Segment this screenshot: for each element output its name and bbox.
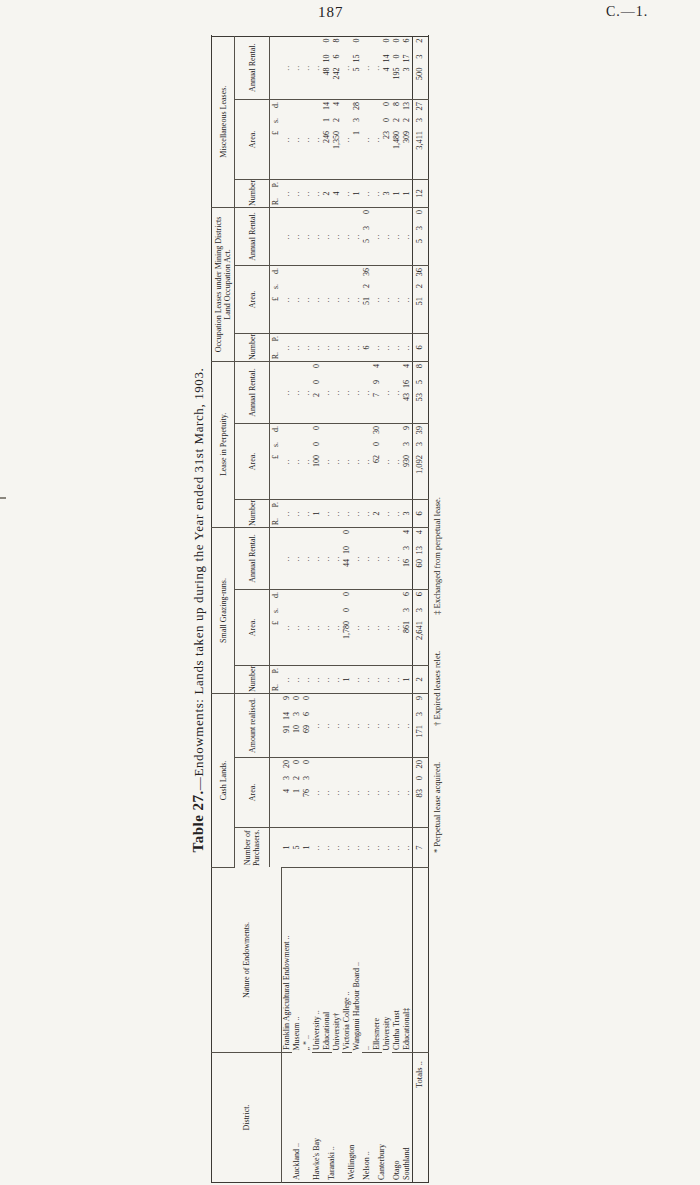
sub-header-2-0: Number. <box>235 499 270 527</box>
cell-value-part: 0 <box>415 776 425 789</box>
cell-value-part: 1,480 <box>392 131 401 177</box>
sub-header-3-1: Area. <box>235 265 270 333</box>
empty-cell-dots: .. <box>322 426 331 497</box>
cell-value: A.R.P. <box>271 182 280 205</box>
cell-value-part: £ <box>271 131 280 177</box>
data-cell: .. <box>292 361 302 423</box>
empty-cell-dots: .. <box>292 268 301 331</box>
cell-value-part: P. <box>271 336 280 352</box>
empty-cell-dots: .. <box>352 268 361 331</box>
data-cell: .. <box>322 361 332 423</box>
data-cell: .. <box>392 693 402 757</box>
data-cell: 2 <box>372 499 382 527</box>
data-cell: .. <box>312 828 322 868</box>
cell-value: 246114 <box>322 102 331 177</box>
cell-value-part: 0 <box>292 696 301 712</box>
cell-value: 60134 <box>415 530 425 587</box>
sub-header-0-1: Area. <box>235 758 270 828</box>
data-cell: .. <box>362 36 372 99</box>
cell-value: 1030 <box>292 696 301 755</box>
footnote-perpetual: * Perpetual lease acquired. <box>432 762 442 853</box>
units-cell: A.R.P. <box>270 333 282 361</box>
empty-cell-dots: .. <box>282 364 291 421</box>
units-cell <box>270 527 282 589</box>
data-cell: .. <box>332 693 342 757</box>
table-title-number: Table 27. <box>190 790 206 852</box>
cell-value: 530 <box>415 210 425 263</box>
cell-value-part: 2 <box>402 118 411 131</box>
empty-cell-dots: .. <box>302 668 311 691</box>
empty-cell-dots: .. <box>332 502 341 525</box>
empty-cell-dots: .. <box>342 336 351 359</box>
cell-value-part: 69 <box>302 725 311 755</box>
data-cell: 3 <box>402 499 413 527</box>
empty-cell-dots: .. <box>322 268 331 331</box>
nature-cell: „ * .. <box>302 868 312 1053</box>
empty-cell-dots: .. <box>392 760 401 825</box>
column-header-district: District. <box>212 1053 282 1183</box>
cell-value-part: 8 <box>415 364 425 380</box>
data-cell: .. <box>362 423 372 499</box>
data-cell: 1 <box>392 179 402 207</box>
empty-cell-dots: .. <box>312 530 321 587</box>
data-cell: .. <box>312 333 322 361</box>
cell-value: 4320 <box>282 760 291 825</box>
cell-value-part: 23 <box>382 131 391 177</box>
group-header-3: Occupation Leases under Mining Districts… <box>212 207 235 361</box>
empty-cell-dots: .. <box>362 182 371 205</box>
empty-cell-dots: .. <box>382 530 391 587</box>
data-cell: 5 <box>292 828 302 868</box>
column-header-nature: Nature of Endowments. <box>212 868 282 1053</box>
data-cell: .. <box>332 207 342 265</box>
data-cell: .. <box>322 589 332 665</box>
cell-value-part: 6 <box>402 38 411 54</box>
cell-value-part: s. <box>271 118 280 131</box>
empty-cell-dots: .. <box>342 830 351 865</box>
data-cell: .. <box>292 527 302 589</box>
data-cell: .. <box>352 665 362 693</box>
cell-value-part: 0 <box>392 38 401 54</box>
data-cell: .. <box>372 265 382 333</box>
cell-value: 1,35024 <box>332 102 341 177</box>
data-cell: .. <box>281 179 292 207</box>
empty-cell-dots: .. <box>372 668 381 691</box>
nature-cell: .. <box>362 868 372 1053</box>
cell-value-part: P. <box>271 502 280 518</box>
cell-value-part: 500 <box>415 67 425 97</box>
data-cell: .. <box>362 499 372 527</box>
data-cell: .. <box>392 207 402 265</box>
cell-value: 1 <box>402 191 411 195</box>
totals-cell: 3,411327 <box>412 99 428 179</box>
empty-cell-dots: .. <box>382 426 391 497</box>
empty-cell-dots: .. <box>332 830 341 865</box>
district-cell: Auckland .. <box>281 1053 312 1183</box>
nature-cell: Wanganui Harbour Board .. <box>352 868 362 1053</box>
cell-value-part: 8 <box>332 38 341 54</box>
empty-cell-dots: .. <box>362 502 371 525</box>
data-cell: .. <box>302 589 312 665</box>
data-cell: .. <box>342 99 352 179</box>
cell-value: 62030 <box>372 426 381 497</box>
sub-header-0-0: Number of Purchasers. <box>235 828 270 868</box>
data-cell: .. <box>342 36 352 99</box>
cell-value: 83020 <box>415 760 425 825</box>
data-cell: .. <box>281 333 292 361</box>
empty-cell-dots: .. <box>302 102 311 177</box>
empty-cell-dots: .. <box>382 592 391 663</box>
data-cell: 1,35024 <box>332 99 342 179</box>
empty-cell-dots: .. <box>372 696 381 755</box>
empty-cell-dots: .. <box>292 668 301 691</box>
data-cell: .. <box>382 333 392 361</box>
data-cell: .. <box>281 423 292 499</box>
rotated-table-block: Table 27.—Endowments: Lands taken up dur… <box>190 37 482 1183</box>
cell-value-part: 8 <box>392 102 401 118</box>
cell-value-part: 1,780 <box>342 621 351 663</box>
data-cell: .. <box>332 361 342 423</box>
data-cell: 6 <box>362 333 372 361</box>
empty-cell-dots: .. <box>342 426 351 497</box>
cell-value-part: £ <box>271 455 280 497</box>
data-cell: .. <box>292 589 302 665</box>
cell-value-part: 2 <box>415 284 425 297</box>
empty-cell-dots: .. <box>402 336 411 359</box>
empty-cell-dots: .. <box>342 364 351 421</box>
cell-value-part: 9 <box>372 380 381 393</box>
units-cell <box>270 207 282 265</box>
data-cell: .. <box>392 589 402 665</box>
cell-value: 5150 <box>352 38 361 97</box>
table-row: WellingtonVictoria College ........11,78… <box>342 36 352 1182</box>
cell-value-part: 48 <box>322 67 331 97</box>
data-cell: .. <box>332 665 342 693</box>
data-cell: .. <box>392 423 402 499</box>
cell-value-part: 1 <box>352 131 361 177</box>
empty-cell-dots: .. <box>302 364 311 421</box>
empty-cell-dots: .. <box>352 426 361 497</box>
data-cell: .. <box>332 499 342 527</box>
data-cell: .. <box>352 693 362 757</box>
table-row: Hawke's BayUniversity ..............1100… <box>312 36 322 1182</box>
cell-value-part: 30 <box>372 426 381 442</box>
cell-value-part: 0 <box>292 760 301 776</box>
cell-value-part: s. <box>271 608 280 621</box>
data-cell: .. <box>312 265 322 333</box>
cell-value: 2 <box>322 191 331 195</box>
data-cell: .. <box>372 207 382 265</box>
table-row: Auckland ..Franklin Agricultural Endowme… <box>281 36 292 1182</box>
empty-cell-dots: .. <box>342 502 351 525</box>
totals-cell: 5358 <box>412 361 428 423</box>
empty-cell-dots: .. <box>282 210 291 263</box>
cell-value-part: 15 <box>352 54 361 67</box>
footnote-expired: † Expired leases relet. <box>432 651 442 726</box>
empty-cell-dots: .. <box>402 696 411 755</box>
units-cell: £s.d. <box>270 265 282 333</box>
cell-value-part: 0 <box>362 210 371 226</box>
empty-cell-dots: .. <box>282 426 291 497</box>
cell-value-part: R. <box>271 684 280 694</box>
empty-cell-dots: .. <box>402 760 411 825</box>
empty-cell-dots: .. <box>372 268 381 331</box>
data-cell: 86136 <box>402 589 413 665</box>
data-cell: .. <box>352 207 362 265</box>
cell-value-part: 0 <box>382 118 391 131</box>
data-cell: .. <box>392 499 402 527</box>
data-cell: .. <box>382 828 392 868</box>
group-header-4: Miscellaneous Leases. <box>212 36 235 207</box>
data-cell: .. <box>322 499 332 527</box>
cell-value-part: 43 <box>402 393 411 421</box>
empty-cell-dots: .. <box>282 268 291 331</box>
data-cell: 93039 <box>402 423 413 499</box>
cell-value-part: 0 <box>382 102 391 118</box>
data-cell: .. <box>281 207 292 265</box>
nature-cell: University† <box>332 868 342 1053</box>
data-cell: 200 <box>312 361 322 423</box>
data-cell: .. <box>322 665 332 693</box>
sub-header-3-0: Number. <box>235 333 270 361</box>
empty-cell-dots: .. <box>392 592 401 663</box>
units-blank-nature <box>270 758 282 828</box>
data-cell: .. <box>352 333 362 361</box>
group-header-0: Cash Lands. <box>212 693 235 867</box>
totals-cell: 2,64136 <box>412 589 428 665</box>
empty-cell-dots: .. <box>372 760 381 825</box>
empty-cell-dots: .. <box>302 592 311 663</box>
district-cell: Otago <box>392 1053 402 1183</box>
cell-value-part: 0 <box>372 442 381 455</box>
page-header: 187 C.—1. <box>0 2 700 26</box>
cell-value: 120 <box>292 760 301 825</box>
cell-value: 3 <box>402 511 411 515</box>
empty-cell-dots: .. <box>362 760 371 825</box>
data-cell: 1030 <box>292 693 302 757</box>
cell-value-part: 1 <box>292 789 301 825</box>
cell-value-part: 27 <box>415 102 425 118</box>
cell-value-part: 930 <box>402 455 411 497</box>
data-cell: 5150 <box>352 36 362 99</box>
empty-cell-dots: .. <box>352 760 361 825</box>
cell-value-part: 2 <box>332 118 341 131</box>
data-cell: .. <box>342 265 352 333</box>
empty-cell-dots: .. <box>332 364 341 421</box>
cell-value-part: 3 <box>402 546 411 559</box>
units-blank-district <box>270 828 282 868</box>
data-cell: .. <box>382 361 392 423</box>
sub-header-2-2: Annual Rental. <box>235 361 270 423</box>
cell-value: 43164 <box>402 364 411 421</box>
empty-cell-dots: .. <box>362 364 371 421</box>
data-cell: 44100 <box>342 527 352 589</box>
cell-value-part: 20 <box>415 760 425 776</box>
cell-value-part: 195 <box>392 67 401 97</box>
data-cell: .. <box>352 758 362 828</box>
cell-value-part: 3 <box>362 226 371 239</box>
cell-value-part: 0 <box>342 592 351 608</box>
empty-cell-dots: .. <box>362 426 371 497</box>
cell-value: 2,64136 <box>415 592 425 663</box>
empty-cell-dots: .. <box>342 268 351 331</box>
sub-header-4-2: Annual Rental. <box>235 36 270 99</box>
data-cell: 1 <box>352 179 362 207</box>
empty-cell-dots: .. <box>352 364 361 421</box>
cell-value-part: 6 <box>402 592 411 608</box>
nature-cell: Ellesmere <box>372 868 382 1053</box>
data-cell: .. <box>332 265 342 333</box>
cell-value-part: P. <box>271 182 280 198</box>
cell-value: 2 <box>372 511 381 515</box>
cell-value: 4 <box>332 191 341 195</box>
cell-value-part: 53 <box>415 393 425 421</box>
data-cell: .. <box>292 333 302 361</box>
data-cell: .. <box>292 665 302 693</box>
cell-value: 6 <box>414 511 424 515</box>
cell-value: £s.d. <box>271 592 280 663</box>
empty-cell-dots: .. <box>392 268 401 331</box>
cell-value: 3 <box>382 191 391 195</box>
cell-value-part: 20 <box>282 760 291 776</box>
data-cell: 246114 <box>322 99 332 179</box>
cell-value-part: 3 <box>415 54 425 67</box>
cell-value-part: 91 <box>282 725 291 755</box>
units-cell <box>270 693 282 757</box>
cell-value-part: 6 <box>302 712 311 725</box>
cell-value: 51236 <box>362 268 371 331</box>
cell-value-part: s. <box>271 284 280 297</box>
empty-cell-dots: .. <box>322 760 331 825</box>
sub-header-4-1: Area. <box>235 99 270 179</box>
cell-value-part: 28 <box>352 102 361 118</box>
cell-value-part: 0 <box>352 38 361 54</box>
data-cell: .. <box>302 499 312 527</box>
district-cell: Southland <box>402 1053 413 1183</box>
district-cell: Canterbury <box>372 1053 392 1183</box>
cell-value: 1 <box>282 846 291 850</box>
cell-value: 1 <box>392 191 401 195</box>
data-cell: .. <box>372 179 382 207</box>
empty-cell-dots: .. <box>342 102 351 177</box>
data-cell: .. <box>402 333 413 361</box>
nature-cell: Educational‡ <box>402 868 413 1053</box>
empty-cell-dots: .. <box>332 268 341 331</box>
data-cell: .. <box>392 758 402 828</box>
data-cell: .. <box>372 828 382 868</box>
empty-cell-dots: .. <box>332 336 341 359</box>
empty-cell-dots: .. <box>292 502 301 525</box>
data-cell: .. <box>281 589 292 665</box>
cell-value: 1 <box>352 191 361 195</box>
totals-cell: 6 <box>412 333 428 361</box>
cell-value: 794 <box>372 364 381 421</box>
sub-header-1-2: Annual Rental. <box>235 527 270 589</box>
data-cell: .. <box>292 99 302 179</box>
cell-value-part: s. <box>271 442 280 455</box>
empty-cell-dots: .. <box>282 182 291 205</box>
data-cell: .. <box>302 361 312 423</box>
data-cell: 1,48028 <box>392 99 402 179</box>
data-cell: .. <box>382 665 392 693</box>
data-cell: .. <box>362 361 372 423</box>
data-cell: 6960 <box>302 693 312 757</box>
data-cell: .. <box>281 36 292 99</box>
empty-cell-dots: .. <box>382 502 391 525</box>
data-cell: .. <box>352 423 362 499</box>
cell-value-part: 246 <box>322 131 331 177</box>
empty-cell-dots: .. <box>332 530 341 587</box>
cell-value-part: 1,092 <box>415 455 425 497</box>
empty-cell-dots: .. <box>392 426 401 497</box>
empty-cell-dots: .. <box>372 336 381 359</box>
cell-value: 91149 <box>282 696 291 755</box>
cell-value-part: 4 <box>332 102 341 118</box>
cell-value-part: 3 <box>352 118 361 131</box>
empty-cell-dots: .. <box>392 364 401 421</box>
data-cell: 10000 <box>312 423 322 499</box>
empty-cell-dots: .. <box>352 336 361 359</box>
empty-cell-dots: .. <box>372 592 381 663</box>
data-cell: .. <box>382 499 392 527</box>
cell-value: 51236 <box>415 268 425 331</box>
data-cell: .. <box>312 693 322 757</box>
cell-value-part: 3 <box>302 776 311 789</box>
units-cell: £s.d. <box>270 99 282 179</box>
cell-value-part: 0 <box>302 696 311 712</box>
cell-value-part: R. <box>271 352 280 362</box>
data-cell: .. <box>362 99 372 179</box>
data-cell: .. <box>332 423 342 499</box>
table-row: Museum ..51201030.......................… <box>292 36 302 1182</box>
cell-value-part: 242 <box>332 67 341 97</box>
data-cell: 2300 <box>382 99 392 179</box>
data-cell: .. <box>302 207 312 265</box>
units-cell: £s.d. <box>270 589 282 665</box>
units-cell: A.R.P. <box>270 665 282 693</box>
cell-value: 309213 <box>402 102 411 177</box>
data-cell: .. <box>322 333 332 361</box>
data-cell: .. <box>302 36 312 99</box>
empty-cell-dots: .. <box>292 38 301 97</box>
data-cell: 3 <box>382 179 392 207</box>
cell-value-part: £ <box>271 297 280 331</box>
empty-cell-dots: .. <box>372 210 381 263</box>
empty-cell-dots: .. <box>282 102 291 177</box>
totals-cell: 530 <box>412 207 428 265</box>
data-cell: .. <box>322 265 332 333</box>
table-row: University†........................41,35… <box>332 36 342 1182</box>
table-row: Taranaki ..Educational..................… <box>322 36 332 1182</box>
cell-value: £s.d. <box>271 268 280 331</box>
data-cell: 1 <box>281 828 292 868</box>
empty-cell-dots: .. <box>312 668 321 691</box>
group-header-2: Lease in Perpetuity. <box>212 361 235 527</box>
empty-cell-dots: .. <box>382 210 391 263</box>
empty-cell-dots: .. <box>312 760 321 825</box>
data-cell: 1 <box>402 179 413 207</box>
empty-cell-dots: .. <box>352 530 361 587</box>
header-group-row: District.Nature of Endowments.Cash Lands… <box>212 36 235 1182</box>
data-cell: .. <box>382 207 392 265</box>
data-cell: .. <box>372 36 382 99</box>
sub-header-2-1: Area. <box>235 423 270 499</box>
empty-cell-dots: .. <box>362 830 371 865</box>
cell-value-part: 9 <box>415 696 425 712</box>
data-cell: 4140 <box>382 36 392 99</box>
cell-value-part: 0 <box>312 364 321 380</box>
footnotes-line: * Perpetual lease acquired. † Expired le… <box>432 37 442 1183</box>
